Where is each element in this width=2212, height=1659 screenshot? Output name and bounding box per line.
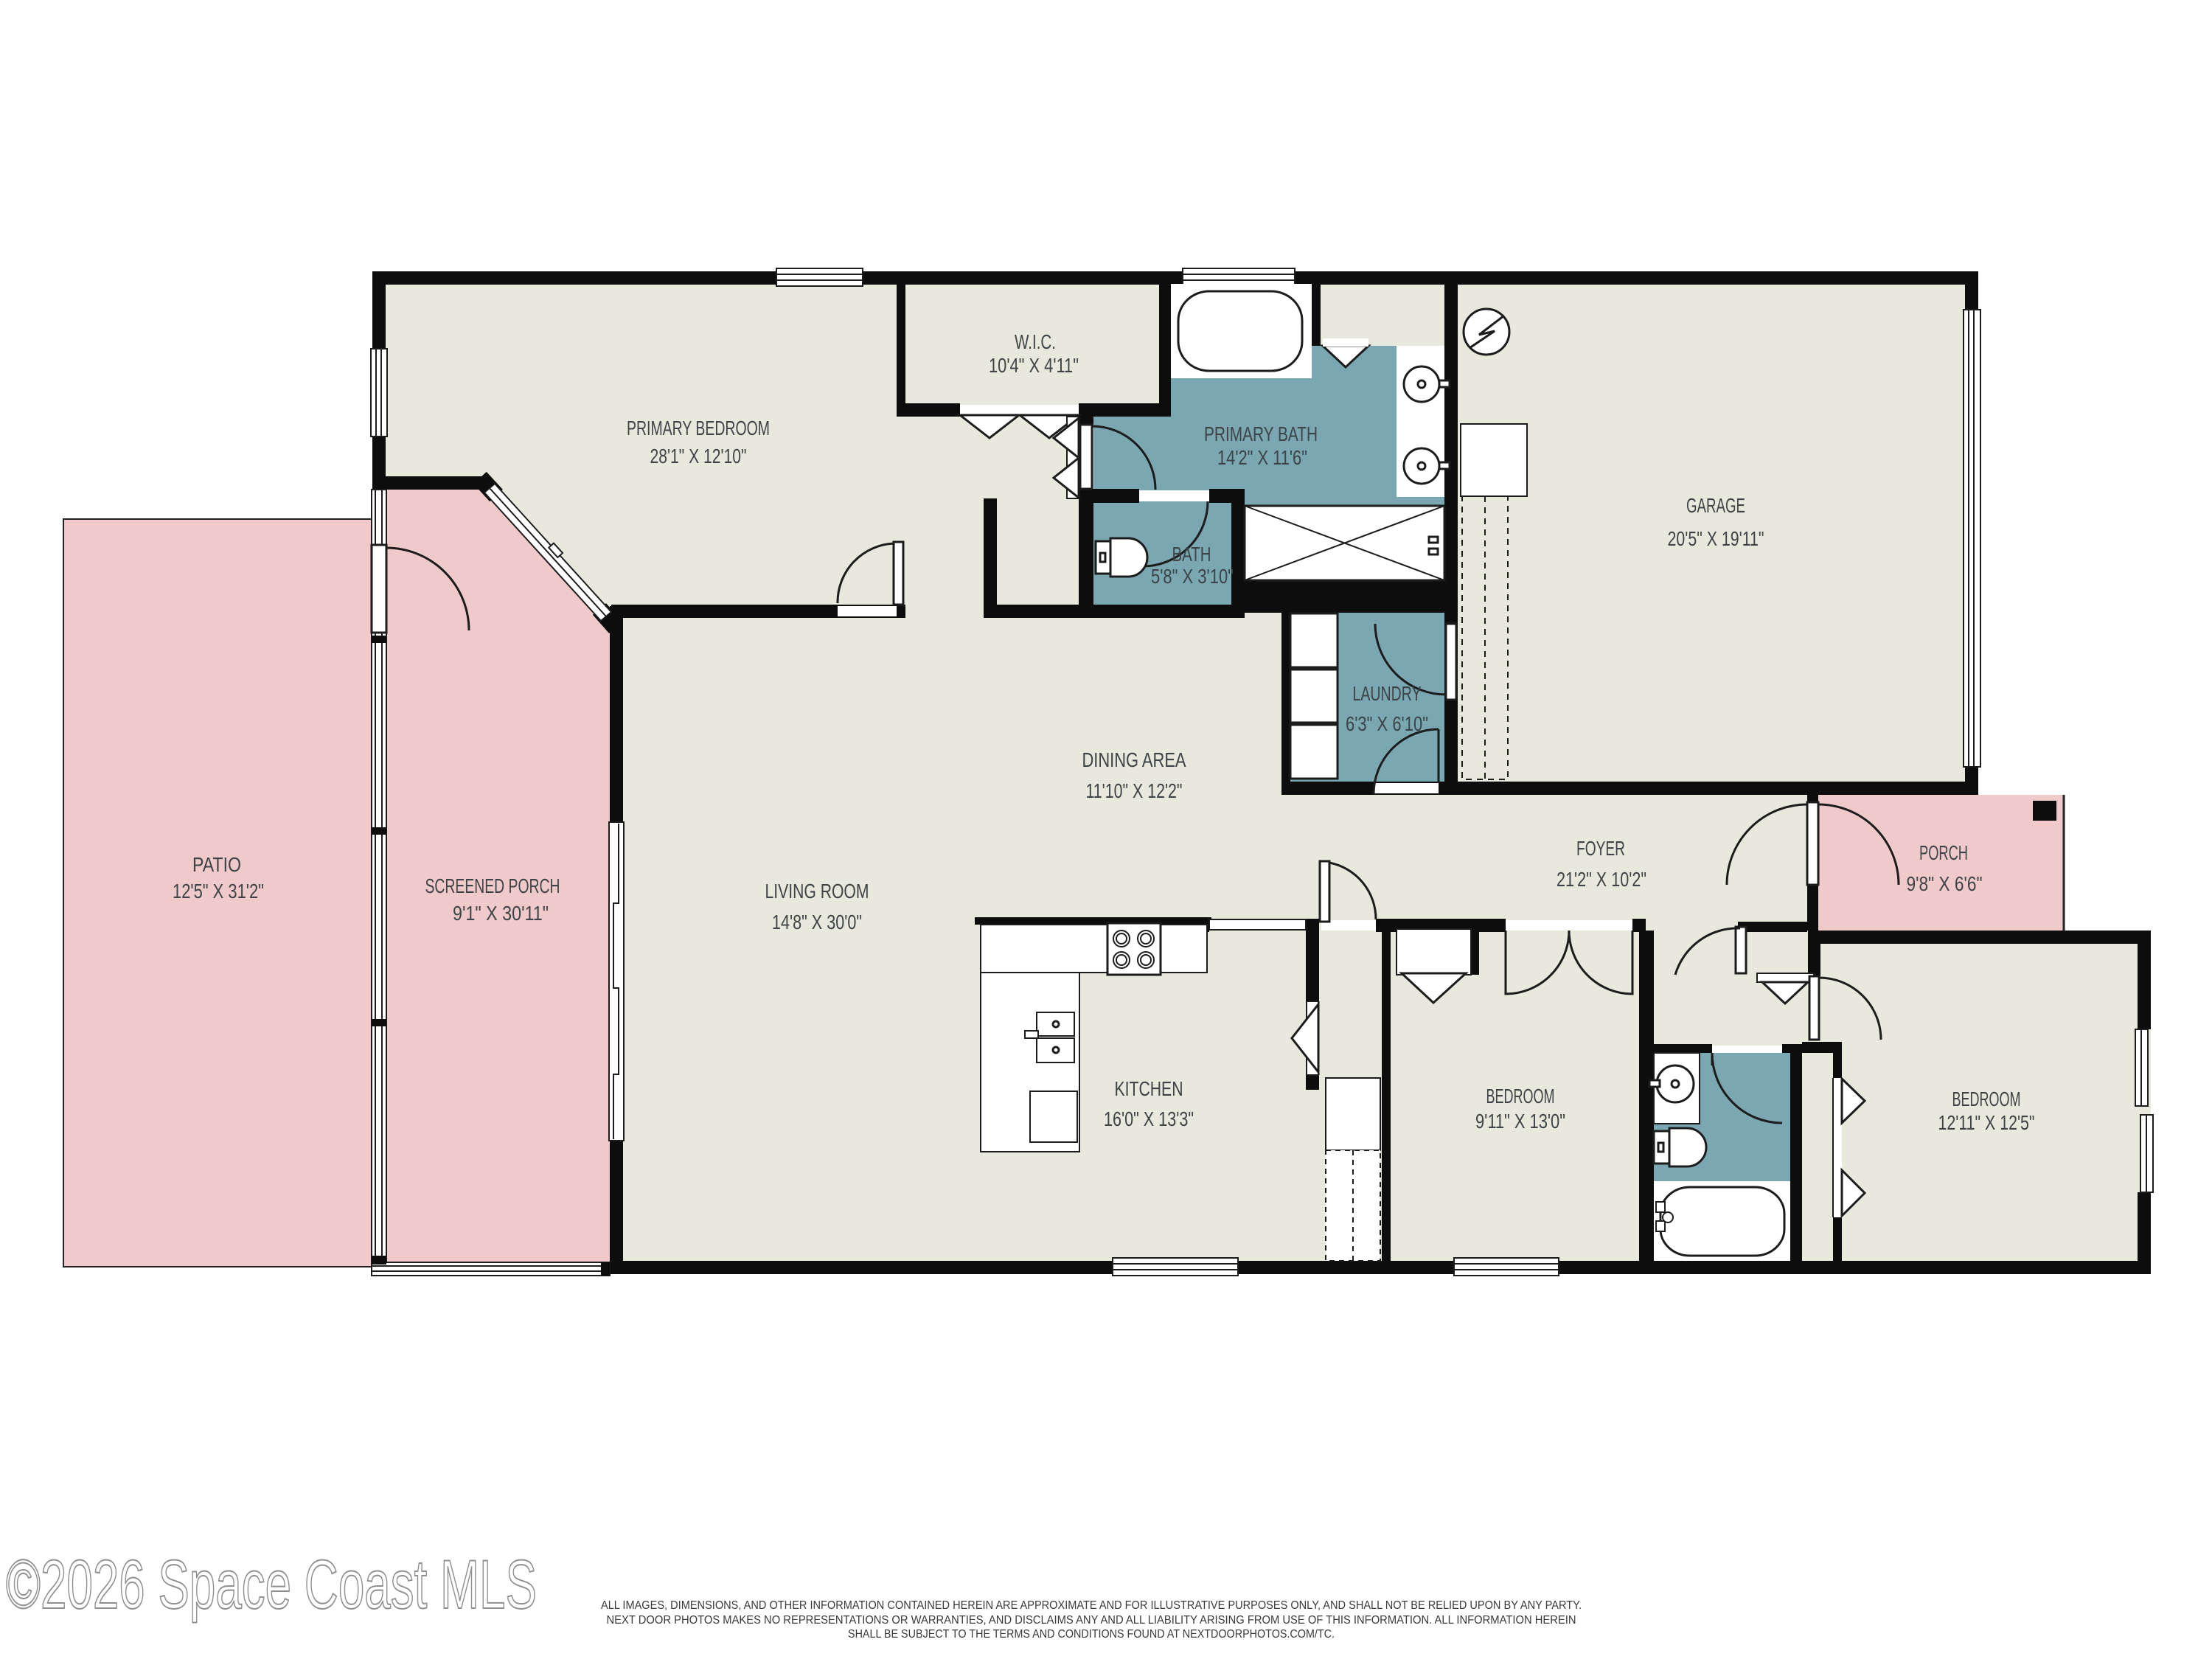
svg-text:SHALL BE SUBJECT TO THE TERMS: SHALL BE SUBJECT TO THE TERMS AND CONDIT… bbox=[848, 1628, 1335, 1641]
svg-text:PRIMARY BEDROOM: PRIMARY BEDROOM bbox=[627, 417, 770, 439]
svg-text:PRIMARY BATH: PRIMARY BATH bbox=[1204, 422, 1318, 445]
svg-text:BEDROOM: BEDROOM bbox=[1486, 1085, 1555, 1107]
svg-text:GARAGE: GARAGE bbox=[1686, 494, 1745, 517]
svg-text:5'8" X 3'10": 5'8" X 3'10" bbox=[1151, 565, 1234, 588]
svg-text:16'0" X 13'3": 16'0" X 13'3" bbox=[1104, 1107, 1194, 1130]
svg-text:DINING AREA: DINING AREA bbox=[1082, 748, 1186, 771]
svg-text:20'5" X 19'11": 20'5" X 19'11" bbox=[1668, 527, 1764, 550]
svg-text:14'8" X 30'0": 14'8" X 30'0" bbox=[772, 911, 862, 933]
svg-text:ALL IMAGES, DIMENSIONS, AND OT: ALL IMAGES, DIMENSIONS, AND OTHER INFORM… bbox=[601, 1599, 1582, 1612]
svg-text:SCREENED PORCH: SCREENED PORCH bbox=[425, 874, 560, 897]
svg-text:PORCH: PORCH bbox=[1919, 841, 1968, 864]
svg-text:21'2" X 10'2": 21'2" X 10'2" bbox=[1557, 868, 1646, 891]
svg-text:BATH: BATH bbox=[1172, 543, 1211, 566]
svg-text:BEDROOM: BEDROOM bbox=[1952, 1088, 2021, 1110]
svg-text:FOYER: FOYER bbox=[1576, 837, 1625, 860]
svg-text:9'8" X 6'6": 9'8" X 6'6" bbox=[1907, 872, 1983, 895]
svg-text:12'5" X 31'2": 12'5" X 31'2" bbox=[173, 880, 264, 902]
svg-text:9'1" X 30'11": 9'1" X 30'11" bbox=[453, 902, 549, 925]
svg-text:10'4" X 4'11": 10'4" X 4'11" bbox=[989, 354, 1079, 377]
svg-text:LIVING ROOM: LIVING ROOM bbox=[765, 880, 869, 902]
svg-text:KITCHEN: KITCHEN bbox=[1115, 1077, 1183, 1100]
svg-text:11'10" X 12'2": 11'10" X 12'2" bbox=[1086, 779, 1183, 802]
svg-text:9'11" X 13'0": 9'11" X 13'0" bbox=[1475, 1110, 1565, 1133]
svg-text:12'11" X 12'5": 12'11" X 12'5" bbox=[1938, 1111, 2035, 1134]
svg-text:LAUNDRY: LAUNDRY bbox=[1353, 682, 1422, 705]
svg-text:W.I.C.: W.I.C. bbox=[1015, 330, 1056, 353]
svg-text:28'1" X 12'10": 28'1" X 12'10" bbox=[650, 445, 747, 467]
svg-text:©2026 Space Coast MLS: ©2026 Space Coast MLS bbox=[6, 1545, 537, 1623]
svg-text:NEXT DOOR PHOTOS MAKES NO REPR: NEXT DOOR PHOTOS MAKES NO REPRESENTATION… bbox=[607, 1614, 1576, 1627]
svg-text:14'2" X 11'6": 14'2" X 11'6" bbox=[1217, 446, 1307, 469]
svg-text:6'3" X 6'10": 6'3" X 6'10" bbox=[1346, 712, 1428, 735]
svg-text:PATIO: PATIO bbox=[192, 853, 241, 876]
